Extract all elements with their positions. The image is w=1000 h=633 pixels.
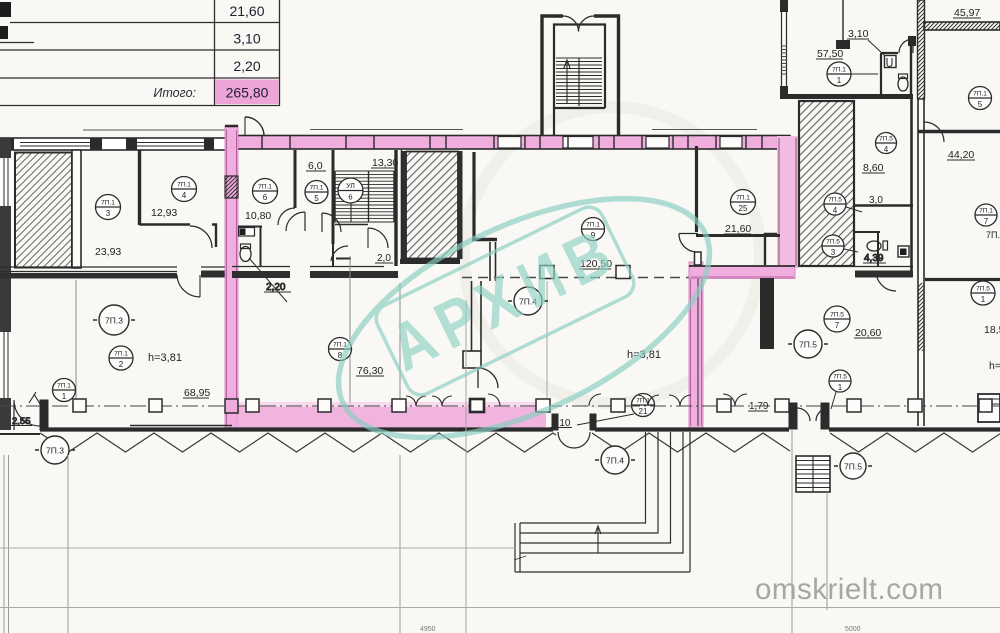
svg-text:5000: 5000: [845, 626, 861, 633]
svg-text:7П.5: 7П.5: [833, 374, 847, 381]
svg-text:2,0: 2,0: [377, 253, 391, 264]
svg-text:7П.5: 7П.5: [844, 462, 862, 472]
svg-text:12,93: 12,93: [151, 207, 177, 219]
svg-text:7П.5: 7П.5: [830, 312, 844, 319]
svg-text:4: 4: [182, 191, 187, 200]
svg-text:45,97: 45,97: [954, 7, 980, 19]
svg-text:7П.3: 7П.3: [105, 316, 123, 326]
svg-text:18,5: 18,5: [984, 324, 1000, 336]
svg-text:3: 3: [106, 209, 111, 218]
svg-text:7П.5: 7П.5: [828, 197, 842, 204]
svg-text:6: 6: [263, 193, 268, 202]
svg-text:h=3,81: h=3,81: [148, 352, 182, 364]
svg-text:4: 4: [833, 206, 838, 215]
svg-text:h=: h=: [989, 360, 1000, 372]
svg-text:7П.1: 7П.1: [177, 182, 191, 189]
svg-text:7П.1: 7П.1: [973, 91, 987, 98]
svg-text:3,0: 3,0: [869, 195, 883, 206]
svg-text:7П.3: 7П.3: [46, 446, 64, 456]
svg-text:7П.1: 7П.1: [832, 67, 846, 74]
svg-text:57,50: 57,50: [817, 48, 843, 60]
svg-text:7: 7: [835, 321, 840, 330]
svg-text:7П.1: 7П.1: [310, 185, 324, 192]
svg-text:4950: 4950: [420, 626, 436, 633]
svg-text:25: 25: [739, 204, 748, 213]
svg-text:7П.5: 7П.5: [799, 340, 817, 350]
svg-text:7П.1: 7П.1: [258, 184, 272, 191]
svg-text:7П.1: 7П.1: [57, 383, 71, 390]
svg-text:4,39: 4,39: [864, 253, 884, 264]
svg-text:УЛ: УЛ: [346, 183, 355, 190]
svg-text:7П.4: 7П.4: [606, 456, 624, 466]
svg-text:4: 4: [884, 145, 889, 154]
svg-text:omskrielt.com: omskrielt.com: [755, 573, 943, 606]
svg-text:8,60: 8,60: [863, 162, 884, 174]
svg-text:Итого:: Итого:: [153, 86, 196, 100]
svg-text:10,80: 10,80: [245, 210, 271, 222]
svg-text:265,80: 265,80: [226, 85, 269, 101]
svg-text:2: 2: [119, 360, 124, 369]
svg-text:7П.1: 7П.1: [736, 195, 750, 202]
svg-text:1: 1: [838, 383, 843, 392]
svg-text:3,10: 3,10: [233, 31, 260, 47]
svg-text:5: 5: [314, 194, 319, 203]
svg-text:1: 1: [981, 295, 986, 304]
svg-text:13,30: 13,30: [372, 157, 398, 169]
svg-text:3: 3: [831, 248, 836, 257]
svg-text:7: 7: [984, 217, 989, 226]
svg-text:21: 21: [639, 407, 648, 416]
svg-text:7П.5: 7П.5: [879, 136, 893, 143]
svg-text:5: 5: [978, 100, 983, 109]
svg-text:7П.1: 7П.1: [114, 351, 128, 358]
svg-text:7П.: 7П.: [986, 230, 1000, 240]
svg-text:21,60: 21,60: [725, 223, 751, 235]
svg-text:20,60: 20,60: [855, 327, 881, 339]
svg-text:76,30: 76,30: [357, 365, 383, 377]
svg-text:7П.1: 7П.1: [101, 200, 115, 207]
svg-text:2,20: 2,20: [266, 282, 286, 293]
svg-text:6: 6: [348, 193, 352, 202]
svg-text:6,0: 6,0: [308, 160, 323, 172]
svg-text:44,20: 44,20: [948, 149, 974, 161]
svg-text:7П.5: 7П.5: [976, 286, 990, 293]
svg-text:3,10: 3,10: [848, 28, 869, 40]
svg-text:2,20: 2,20: [233, 58, 260, 74]
svg-text:68,95: 68,95: [184, 387, 210, 399]
svg-text:21,60: 21,60: [229, 3, 264, 19]
svg-text:1: 1: [62, 392, 67, 401]
svg-text:7П.1: 7П.1: [979, 208, 993, 215]
svg-text:1: 1: [837, 76, 842, 85]
svg-text:23,93: 23,93: [95, 246, 121, 258]
svg-text:7П.5: 7П.5: [826, 239, 840, 246]
